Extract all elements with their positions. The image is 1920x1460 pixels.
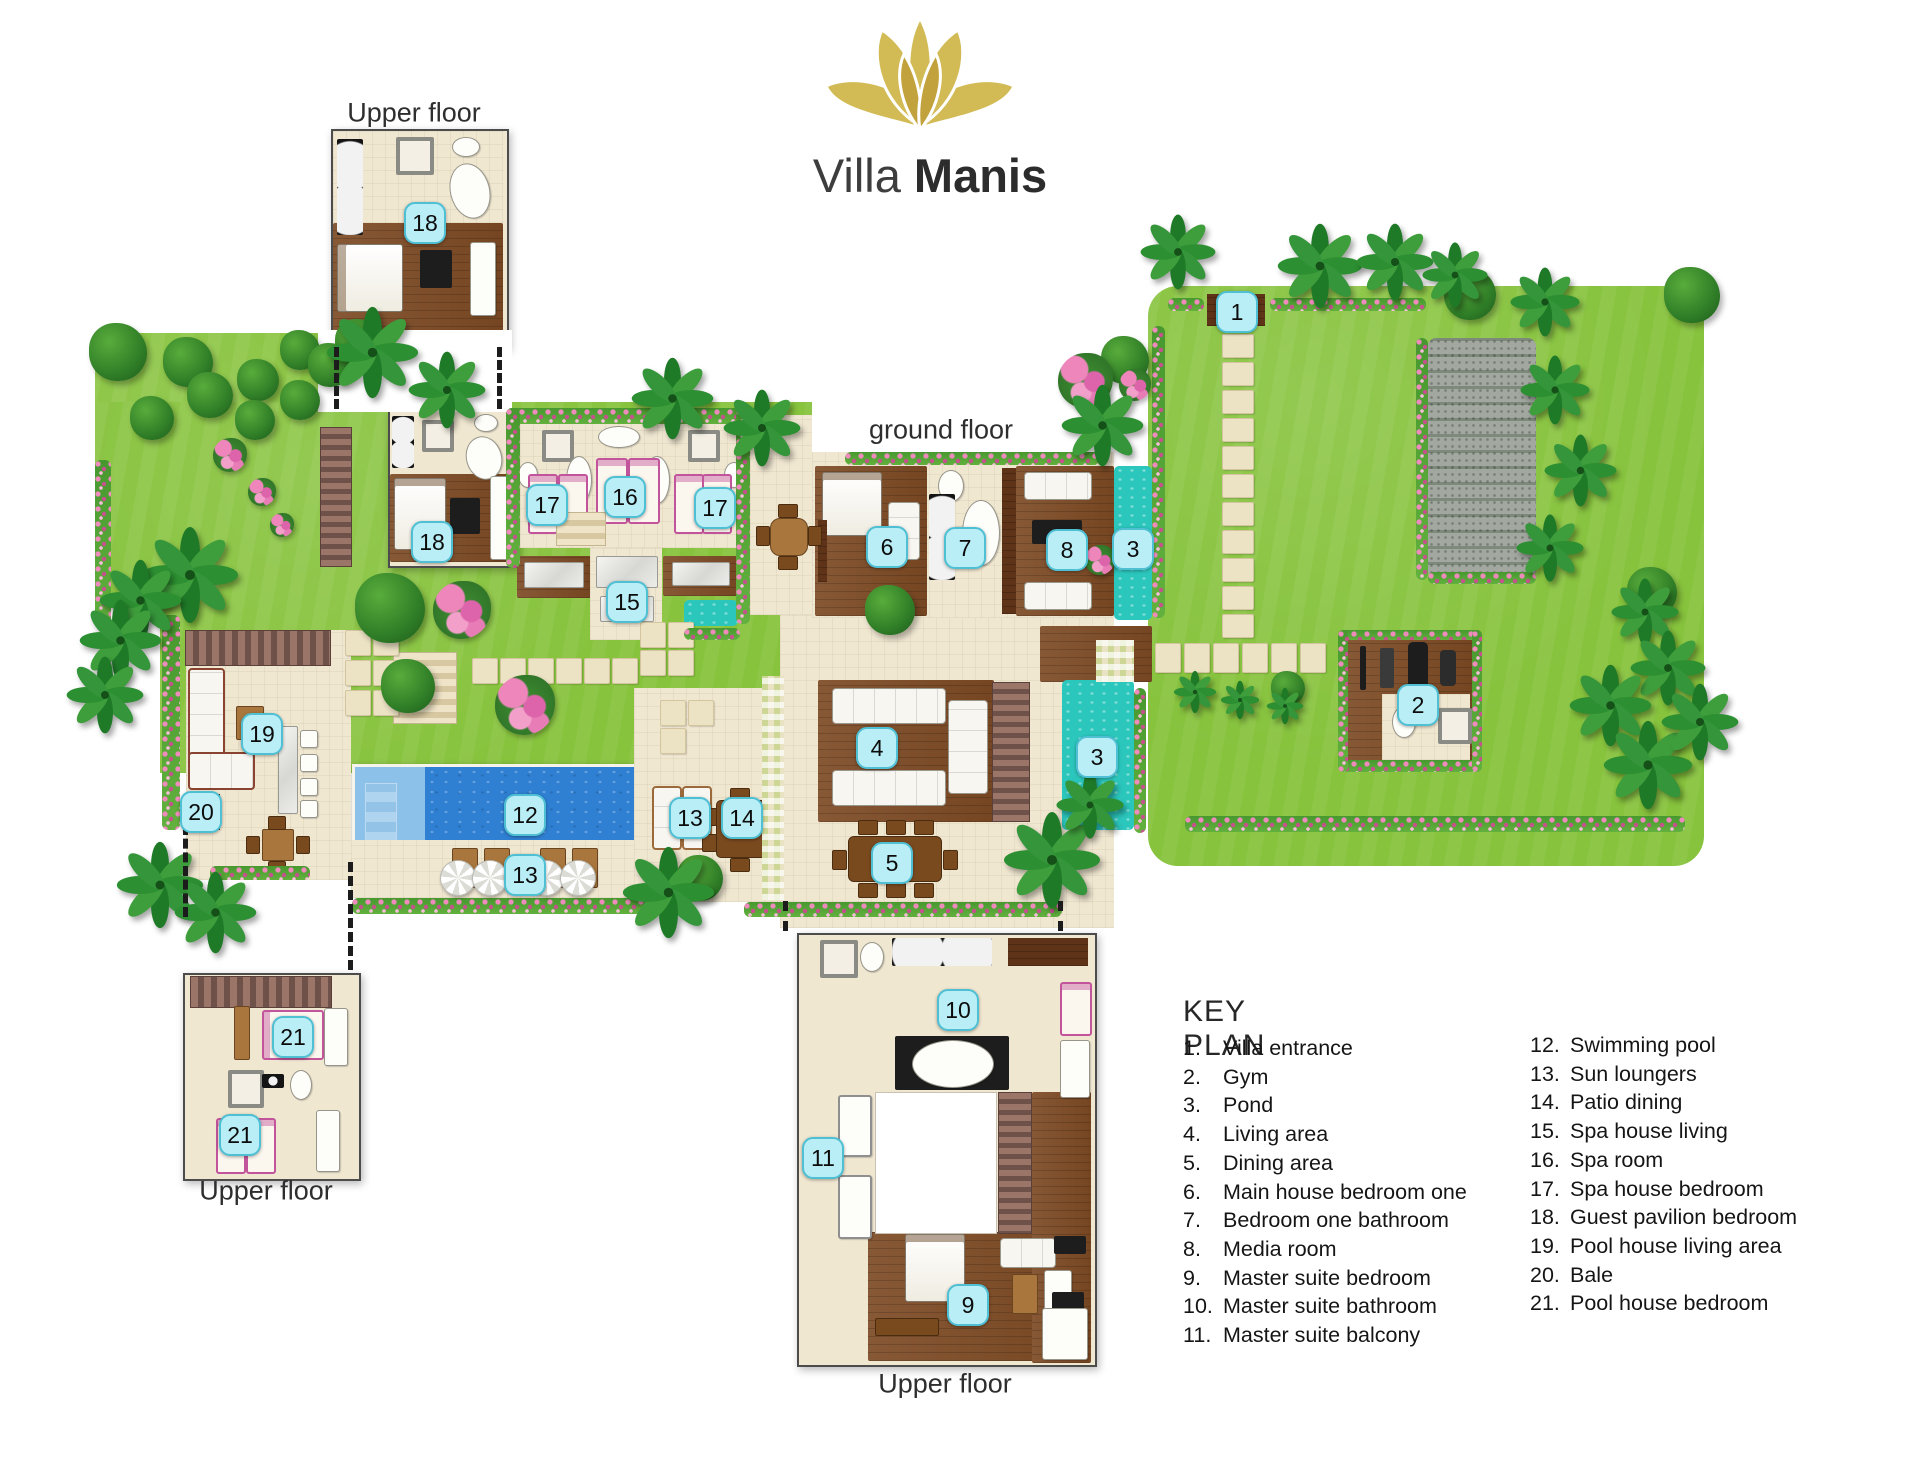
plan-marker-8: 8	[1046, 529, 1088, 571]
legend-item-number: 2.	[1183, 1063, 1223, 1092]
stepping-stone	[1222, 390, 1254, 414]
legend-item-number: 1.	[1183, 1034, 1223, 1063]
legend-item-label: Main house bedroom one	[1223, 1180, 1467, 1204]
legend-item: 15.Spa house living	[1530, 1117, 1890, 1146]
legend-item-label: Pool house bedroom	[1570, 1291, 1768, 1315]
floor-label: Upper floor	[878, 1369, 1012, 1400]
day-bed	[524, 562, 584, 588]
wardrobe	[324, 1008, 348, 1066]
stepping-stone	[612, 658, 638, 684]
bathroom-cabinet	[1002, 468, 1016, 614]
stepping-stone	[1242, 643, 1268, 673]
flower-border	[1338, 630, 1482, 640]
legend-item-label: Pond	[1223, 1093, 1273, 1117]
day-bed	[672, 562, 730, 586]
chair	[296, 836, 310, 854]
legend-item-number: 19.	[1530, 1232, 1570, 1261]
bathtub-icon	[912, 1040, 994, 1088]
wardrobe	[470, 242, 496, 316]
floor-link-dashes	[497, 347, 502, 409]
legend-item-number: 15.	[1530, 1117, 1570, 1146]
dining-chair	[914, 820, 934, 835]
plan-marker-3: 3	[1076, 736, 1118, 778]
legend-item-label: Spa house bedroom	[1570, 1177, 1764, 1201]
wardrobe	[316, 1110, 340, 1172]
plan-marker-3: 3	[1112, 528, 1154, 570]
legend-item-number: 20.	[1530, 1261, 1570, 1290]
tree-icon	[130, 396, 174, 440]
flower-border	[1134, 688, 1146, 833]
stepping-stone	[660, 728, 686, 754]
legend-item-number: 10.	[1183, 1292, 1223, 1321]
legend-item: 16.Spa room	[1530, 1146, 1890, 1175]
legend-column-2: 12.Swimming pool13.Sun loungers14.Patio …	[1530, 1031, 1890, 1318]
floor-label: Upper floor	[199, 1176, 333, 1207]
plan-marker-21: 21	[272, 1016, 314, 1058]
brand-title-light: Villa	[813, 149, 901, 202]
master-stairs	[998, 1092, 1032, 1234]
legend-item-number: 3.	[1183, 1091, 1223, 1120]
legend-item-label: Swimming pool	[1570, 1033, 1716, 1057]
palm-tree-icon	[1266, 687, 1304, 725]
tree-icon	[865, 585, 915, 635]
double-sink-vanity	[892, 938, 992, 966]
gym-rack	[1380, 648, 1394, 688]
palm-tree-icon	[1060, 383, 1145, 468]
flower-border	[352, 898, 660, 914]
legend-item: 7.Bedroom one bathroom	[1183, 1206, 1533, 1235]
plan-marker-12: 12	[504, 794, 546, 836]
legend-item-number: 7.	[1183, 1206, 1223, 1235]
stepping-stone	[1222, 474, 1254, 498]
flower-border	[506, 408, 520, 568]
legend-item-number: 21.	[1530, 1289, 1570, 1318]
stepping-stone	[1300, 643, 1326, 673]
plan-marker-13: 13	[504, 854, 546, 896]
legend-item: 13.Sun loungers	[1530, 1060, 1890, 1089]
brand-title-bold: Manis	[914, 149, 1047, 202]
plan-marker-11: 11	[802, 1137, 844, 1179]
villa-manis-floor-plan-page: Villa Manis	[0, 0, 1920, 1460]
legend-item: 17.Spa house bedroom	[1530, 1175, 1890, 1204]
double-bed	[337, 244, 403, 312]
closet-panel	[838, 1175, 872, 1239]
tv-bench	[875, 1318, 939, 1336]
legend-item-number: 4.	[1183, 1120, 1223, 1149]
palm-tree-icon	[407, 350, 487, 430]
dining-chair	[858, 883, 878, 898]
legend-item-label: Guest pavilion bedroom	[1570, 1205, 1797, 1229]
palm-tree-icon	[1220, 680, 1260, 720]
legend-item-number: 17.	[1530, 1175, 1570, 1204]
rug	[420, 250, 452, 288]
legend-item-label: Pool house living area	[1570, 1234, 1782, 1258]
legend-item: 1.Villa entrance	[1183, 1034, 1533, 1063]
checker-tiles-pond	[1096, 640, 1134, 682]
legend-item-number: 16.	[1530, 1146, 1570, 1175]
legend-item-number: 18.	[1530, 1203, 1570, 1232]
chaise-lounge	[1000, 1238, 1056, 1268]
stepping-stone	[345, 660, 371, 686]
tree-icon	[235, 400, 275, 440]
chair	[268, 816, 286, 830]
gym-bike	[1440, 650, 1456, 686]
plan-marker-5: 5	[871, 842, 913, 884]
plan-marker-2: 2	[1397, 684, 1439, 726]
stepping-stone	[660, 700, 686, 726]
palm-tree-icon	[621, 845, 716, 940]
plan-marker-4: 4	[856, 727, 898, 769]
bar-stool	[300, 778, 318, 796]
flower-border	[1416, 338, 1428, 580]
pool-house-upper-stairs	[190, 976, 332, 1008]
tree-icon	[237, 359, 279, 401]
tree-icon	[381, 659, 435, 713]
legend-item-number: 6.	[1183, 1178, 1223, 1207]
plan-marker-14: 14	[721, 797, 763, 839]
toilet-icon	[860, 942, 884, 972]
palm-tree-icon	[630, 356, 715, 441]
dining-chair	[886, 883, 906, 898]
plan-marker-10: 10	[937, 989, 979, 1031]
chair	[730, 858, 750, 872]
legend-item-label: Bale	[1570, 1263, 1613, 1287]
shower-icon	[820, 940, 858, 978]
rug	[1054, 1236, 1086, 1254]
palm-tree-icon	[1660, 682, 1740, 762]
legend-item-number: 12.	[1530, 1031, 1570, 1060]
stepping-stone	[668, 650, 694, 676]
stepping-stone	[1222, 446, 1254, 470]
palm-tree-icon	[1139, 213, 1217, 291]
chaise-lounge	[1060, 1040, 1090, 1098]
legend-item-number: 13.	[1530, 1060, 1570, 1089]
legend-item-label: Villa entrance	[1223, 1036, 1353, 1060]
checker-tile-path	[762, 676, 784, 900]
palm-tree-icon	[1173, 670, 1217, 714]
stepping-stone	[1184, 643, 1210, 673]
legend-item: 10.Master suite bathroom	[1183, 1292, 1533, 1321]
legend-item: 9.Master suite bedroom	[1183, 1264, 1533, 1293]
plan-marker-17: 17	[694, 487, 736, 529]
living-sofa	[948, 700, 988, 794]
legend-item: 18.Guest pavilion bedroom	[1530, 1203, 1890, 1232]
stepping-stone	[1222, 418, 1254, 442]
umbrella-icon	[440, 860, 476, 896]
palm-tree-icon	[1519, 354, 1591, 426]
legend-item-number: 8.	[1183, 1235, 1223, 1264]
dining-chair	[943, 850, 958, 870]
dining-chair	[886, 820, 906, 835]
pool-house-sofa	[188, 668, 225, 758]
stepping-stone	[1222, 362, 1254, 386]
chair	[246, 836, 260, 854]
side-table	[1012, 1274, 1038, 1314]
stepping-stone	[1271, 643, 1297, 673]
legend-item: 3.Pond	[1183, 1091, 1533, 1120]
living-sofa	[832, 688, 946, 724]
tree-icon	[280, 380, 320, 420]
plan-marker-13: 13	[669, 797, 711, 839]
bar-stool	[300, 754, 318, 772]
legend-item-label: Gym	[1223, 1065, 1268, 1089]
legend-item: 8.Media room	[1183, 1235, 1533, 1264]
tree-icon	[89, 323, 147, 381]
floor-link-dashes	[783, 901, 788, 931]
plan-marker-6: 6	[866, 526, 908, 568]
legend-item-label: Spa house living	[1570, 1119, 1728, 1143]
legend-item: 21.Pool house bedroom	[1530, 1289, 1890, 1318]
dining-chair	[832, 850, 847, 870]
plan-marker-19: 19	[241, 713, 283, 755]
plan-marker-18: 18	[411, 521, 453, 563]
plan-marker-15: 15	[606, 581, 648, 623]
legend-item: 19.Pool house living area	[1530, 1232, 1890, 1261]
legend-item: 12.Swimming pool	[1530, 1031, 1890, 1060]
palm-tree-icon	[722, 388, 802, 468]
round-dining-table	[262, 829, 294, 861]
floor-link-dashes	[1058, 901, 1063, 931]
pool-house-stairs-roof	[185, 630, 331, 666]
legend-item-label: Sun loungers	[1570, 1062, 1697, 1086]
flower-border	[1338, 760, 1482, 772]
media-sofa	[1024, 472, 1092, 500]
palm-tree-icon	[1055, 770, 1125, 840]
floor-link-dashes	[334, 347, 339, 409]
stair-landing	[234, 1006, 250, 1060]
sink-vanity	[262, 1074, 284, 1088]
legend-item: 20.Bale	[1530, 1261, 1890, 1290]
round-table	[770, 518, 808, 556]
toilet-icon	[290, 1070, 312, 1100]
flower-border	[162, 615, 180, 830]
palm-tree-icon	[1515, 513, 1585, 583]
palm-tree-icon	[1276, 222, 1364, 310]
legend-item: 11.Master suite balcony	[1183, 1321, 1533, 1350]
umbrella-icon	[560, 860, 596, 896]
flower-border	[1472, 630, 1482, 772]
shower-icon	[542, 430, 574, 462]
plan-marker-20: 20	[180, 791, 222, 833]
floor-link-dashes	[183, 825, 188, 917]
stepping-stone	[640, 622, 666, 648]
stepping-stone	[640, 650, 666, 676]
umbrella-icon	[472, 860, 508, 896]
legend-item-number: 14.	[1530, 1088, 1570, 1117]
stepping-stone	[1222, 614, 1254, 638]
living-sofa	[832, 770, 946, 806]
dining-chair	[914, 883, 934, 898]
shower-icon	[396, 137, 434, 175]
legend-item-label: Dining area	[1223, 1151, 1333, 1175]
plan-marker-16: 16	[604, 476, 646, 518]
palm-tree-icon	[1421, 241, 1489, 309]
shower-icon	[228, 1070, 264, 1108]
gym-barbell	[1360, 646, 1366, 690]
stepping-stone	[1155, 643, 1181, 673]
sofa	[1042, 1308, 1088, 1360]
guest-pavilion-stairs	[320, 427, 352, 567]
stepping-stone	[584, 658, 610, 684]
plan-marker-17: 17	[526, 484, 568, 526]
palm-tree-icon	[1509, 266, 1581, 338]
stepping-stone	[1222, 530, 1254, 554]
legend-item-label: Master suite balcony	[1223, 1323, 1420, 1347]
media-sofa	[1024, 582, 1092, 610]
legend-item-number: 11.	[1183, 1321, 1223, 1350]
stepping-stone	[1222, 334, 1254, 358]
palm-tree-icon	[1543, 433, 1618, 508]
legend-item: 4.Living area	[1183, 1120, 1533, 1149]
chair	[778, 504, 798, 518]
tree-icon	[1664, 267, 1720, 323]
legend-item-label: Spa room	[1570, 1148, 1663, 1172]
single-bed	[1060, 982, 1092, 1036]
chair	[778, 556, 798, 570]
stepping-stone	[1222, 502, 1254, 526]
plan-marker-18: 18	[404, 202, 446, 244]
flower-border	[684, 628, 740, 640]
floor-label: ground floor	[869, 415, 1013, 446]
floor-link-dashes	[348, 862, 353, 970]
chair	[756, 526, 770, 546]
legend-column-1: 1.Villa entrance2.Gym3.Pond4.Living area…	[1183, 1034, 1533, 1350]
legend-item: 5.Dining area	[1183, 1149, 1533, 1178]
living-stairs	[992, 682, 1030, 822]
plan-marker-21: 21	[219, 1114, 261, 1156]
pool-steps	[365, 783, 397, 843]
dining-chair	[858, 820, 878, 835]
legend-item: 14.Patio dining	[1530, 1088, 1890, 1117]
tree-icon	[355, 573, 425, 643]
bar-stool	[300, 800, 318, 818]
legend-item-label: Bedroom one bathroom	[1223, 1208, 1449, 1232]
palm-tree-icon	[65, 655, 145, 735]
stepping-stone	[1222, 586, 1254, 610]
double-sink-vanity	[337, 139, 363, 235]
legend-item: 6.Main house bedroom one	[1183, 1178, 1533, 1207]
legend-item-number: 5.	[1183, 1149, 1223, 1178]
wardrobe-cabinet	[1008, 938, 1088, 966]
plan-marker-7: 7	[944, 527, 986, 569]
brand-title: Villa Manis	[813, 148, 1047, 203]
flower-border	[1152, 326, 1165, 618]
rug	[450, 498, 480, 534]
legend-item-label: Media room	[1223, 1237, 1337, 1261]
stepping-stone	[345, 690, 371, 716]
toilet-icon	[452, 137, 480, 157]
legend-item-label: Master suite bedroom	[1223, 1266, 1431, 1290]
flower-border	[1185, 816, 1685, 832]
shower-icon	[1438, 708, 1472, 744]
legend-item-label: Patio dining	[1570, 1090, 1682, 1114]
plan-marker-9: 9	[947, 1284, 989, 1326]
tree-icon	[187, 372, 233, 418]
chair	[808, 526, 822, 546]
stepping-stone	[472, 658, 498, 684]
floor-label: Upper floor	[347, 98, 481, 129]
stepping-stone	[688, 700, 714, 726]
lotus-logo-icon	[820, 12, 1020, 140]
plan-marker-1: 1	[1216, 291, 1258, 333]
legend-item-label: Master suite bathroom	[1223, 1294, 1437, 1318]
stepping-stone	[556, 658, 582, 684]
balcony-void	[875, 1092, 997, 1234]
stepping-stone	[1222, 558, 1254, 582]
flower-border	[1338, 630, 1348, 772]
flower-border	[1168, 298, 1204, 311]
legend-item: 2.Gym	[1183, 1063, 1533, 1092]
stepping-stone	[1213, 643, 1239, 673]
pool-house-sofa	[188, 752, 255, 790]
legend-item-number: 9.	[1183, 1264, 1223, 1293]
bar-stool	[300, 730, 318, 748]
legend-item-label: Living area	[1223, 1122, 1328, 1146]
